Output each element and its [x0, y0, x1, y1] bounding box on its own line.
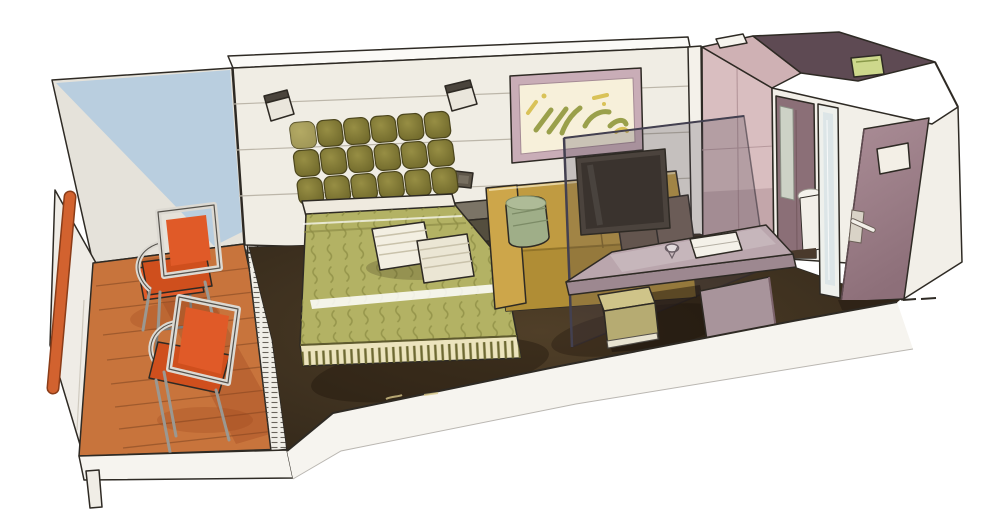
art-dot: [542, 94, 547, 99]
bolster-roll: [506, 196, 546, 210]
door-window: [877, 143, 910, 174]
mirror: [780, 106, 794, 200]
switch-plate: [458, 175, 469, 184]
sofa-pillow: [506, 196, 549, 247]
cabin-cutaway-illustration: [0, 0, 1000, 512]
shower-glass: [818, 104, 840, 298]
balcony-cut-band: [79, 450, 293, 480]
tuft-highlight: [289, 121, 317, 149]
art-dot-2: [602, 102, 606, 106]
illustration-canvas: [0, 0, 1000, 512]
chair-near-backrest: [178, 307, 229, 374]
chair-far-backrest: [166, 215, 211, 266]
ceiling-light: [851, 55, 884, 77]
desk-stool: [598, 287, 659, 348]
